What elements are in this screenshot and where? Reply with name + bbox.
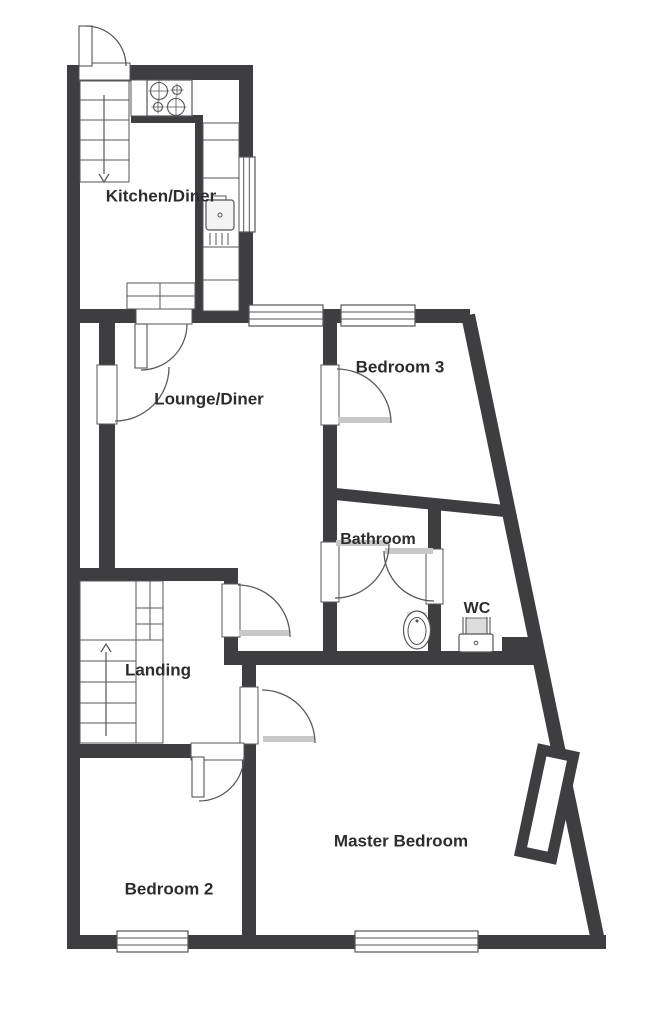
room-label-bedroom-3: Bedroom 3: [356, 357, 445, 376]
master-door-opening: [240, 687, 258, 744]
room-label-bathroom: Bathroom: [340, 531, 416, 548]
mid-horizontal-wall: [237, 651, 545, 665]
landing-top-wall: [67, 568, 237, 581]
room-label-bedroom-2: Bedroom 2: [125, 879, 214, 898]
room-label-master-bedroom: Master Bedroom: [334, 831, 468, 850]
master-bedroom-window: [355, 931, 478, 952]
landing-door-opening: [222, 584, 240, 637]
floor-plan: Kitchen/DinerLounge/DinerBedroom 3Bathro…: [0, 0, 670, 1017]
bathroom-left-door-opening: [321, 542, 339, 602]
exterior-left-wall: [67, 65, 80, 949]
landing-door-leaf: [239, 630, 289, 636]
bedroom2-window: [117, 931, 188, 952]
kitchen-window: [238, 157, 255, 232]
room-label-wc: WC: [464, 600, 491, 617]
room-label-landing: Landing: [125, 660, 191, 679]
bedroom2-door-leaf: [192, 757, 204, 797]
bed3-bath-left-wall: [323, 309, 337, 665]
wc-cistern-icon: [459, 634, 493, 652]
bedroom3-door-opening: [321, 365, 339, 425]
kitchen-mid-wall: [195, 117, 203, 311]
cupboard-door-opening: [97, 365, 117, 424]
cupboard-wall: [99, 323, 115, 568]
lounge-window: [249, 305, 323, 326]
room-label-lounge-diner: Lounge/Diner: [154, 389, 264, 408]
kitchen-counter-end: [131, 80, 147, 116]
toilet-flush-dot: [416, 620, 419, 623]
kitchen-door-leaf: [135, 324, 147, 368]
bathroom-right-door-opening: [426, 549, 443, 604]
bedroom3-door-leaf: [338, 417, 390, 423]
entrance-door-leaf: [79, 26, 92, 66]
floor-plan-page: Kitchen/DinerLounge/DinerBedroom 3Bathro…: [0, 0, 670, 1017]
bathroom-right-door-leaf: [385, 548, 433, 554]
room-label-kitchen-diner: Kitchen/Diner: [106, 186, 217, 205]
master-door-leaf: [263, 736, 314, 742]
kitchen-door-opening: [136, 307, 192, 324]
bedroom3-window: [341, 305, 415, 326]
wc-bowl-shade: [466, 618, 487, 634]
